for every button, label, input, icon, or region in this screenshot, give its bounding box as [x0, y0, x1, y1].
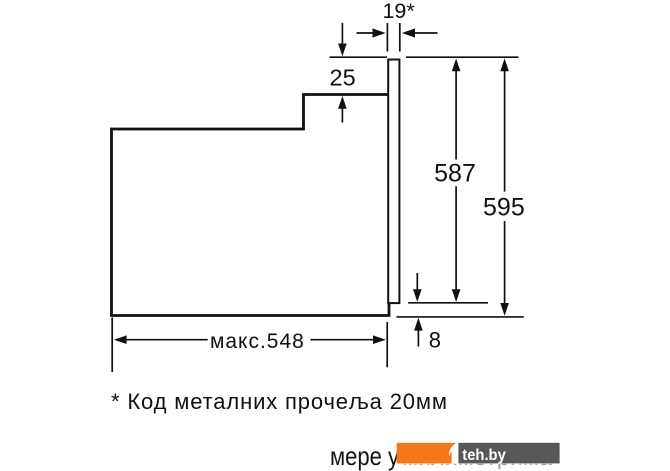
svg-text:19*: 19* — [382, 0, 415, 23]
svg-text:25: 25 — [330, 65, 356, 91]
svg-text:595: 595 — [483, 194, 525, 222]
svg-text:мере у: мере у — [330, 441, 399, 471]
svg-text:587: 587 — [434, 159, 476, 187]
svg-text:teh.by: teh.by — [462, 447, 506, 464]
svg-text:макс.548: макс.548 — [210, 330, 305, 353]
svg-text:8: 8 — [429, 328, 441, 353]
svg-text:* Код металних прочеља 20мм: * Код металних прочеља 20мм — [111, 389, 448, 414]
